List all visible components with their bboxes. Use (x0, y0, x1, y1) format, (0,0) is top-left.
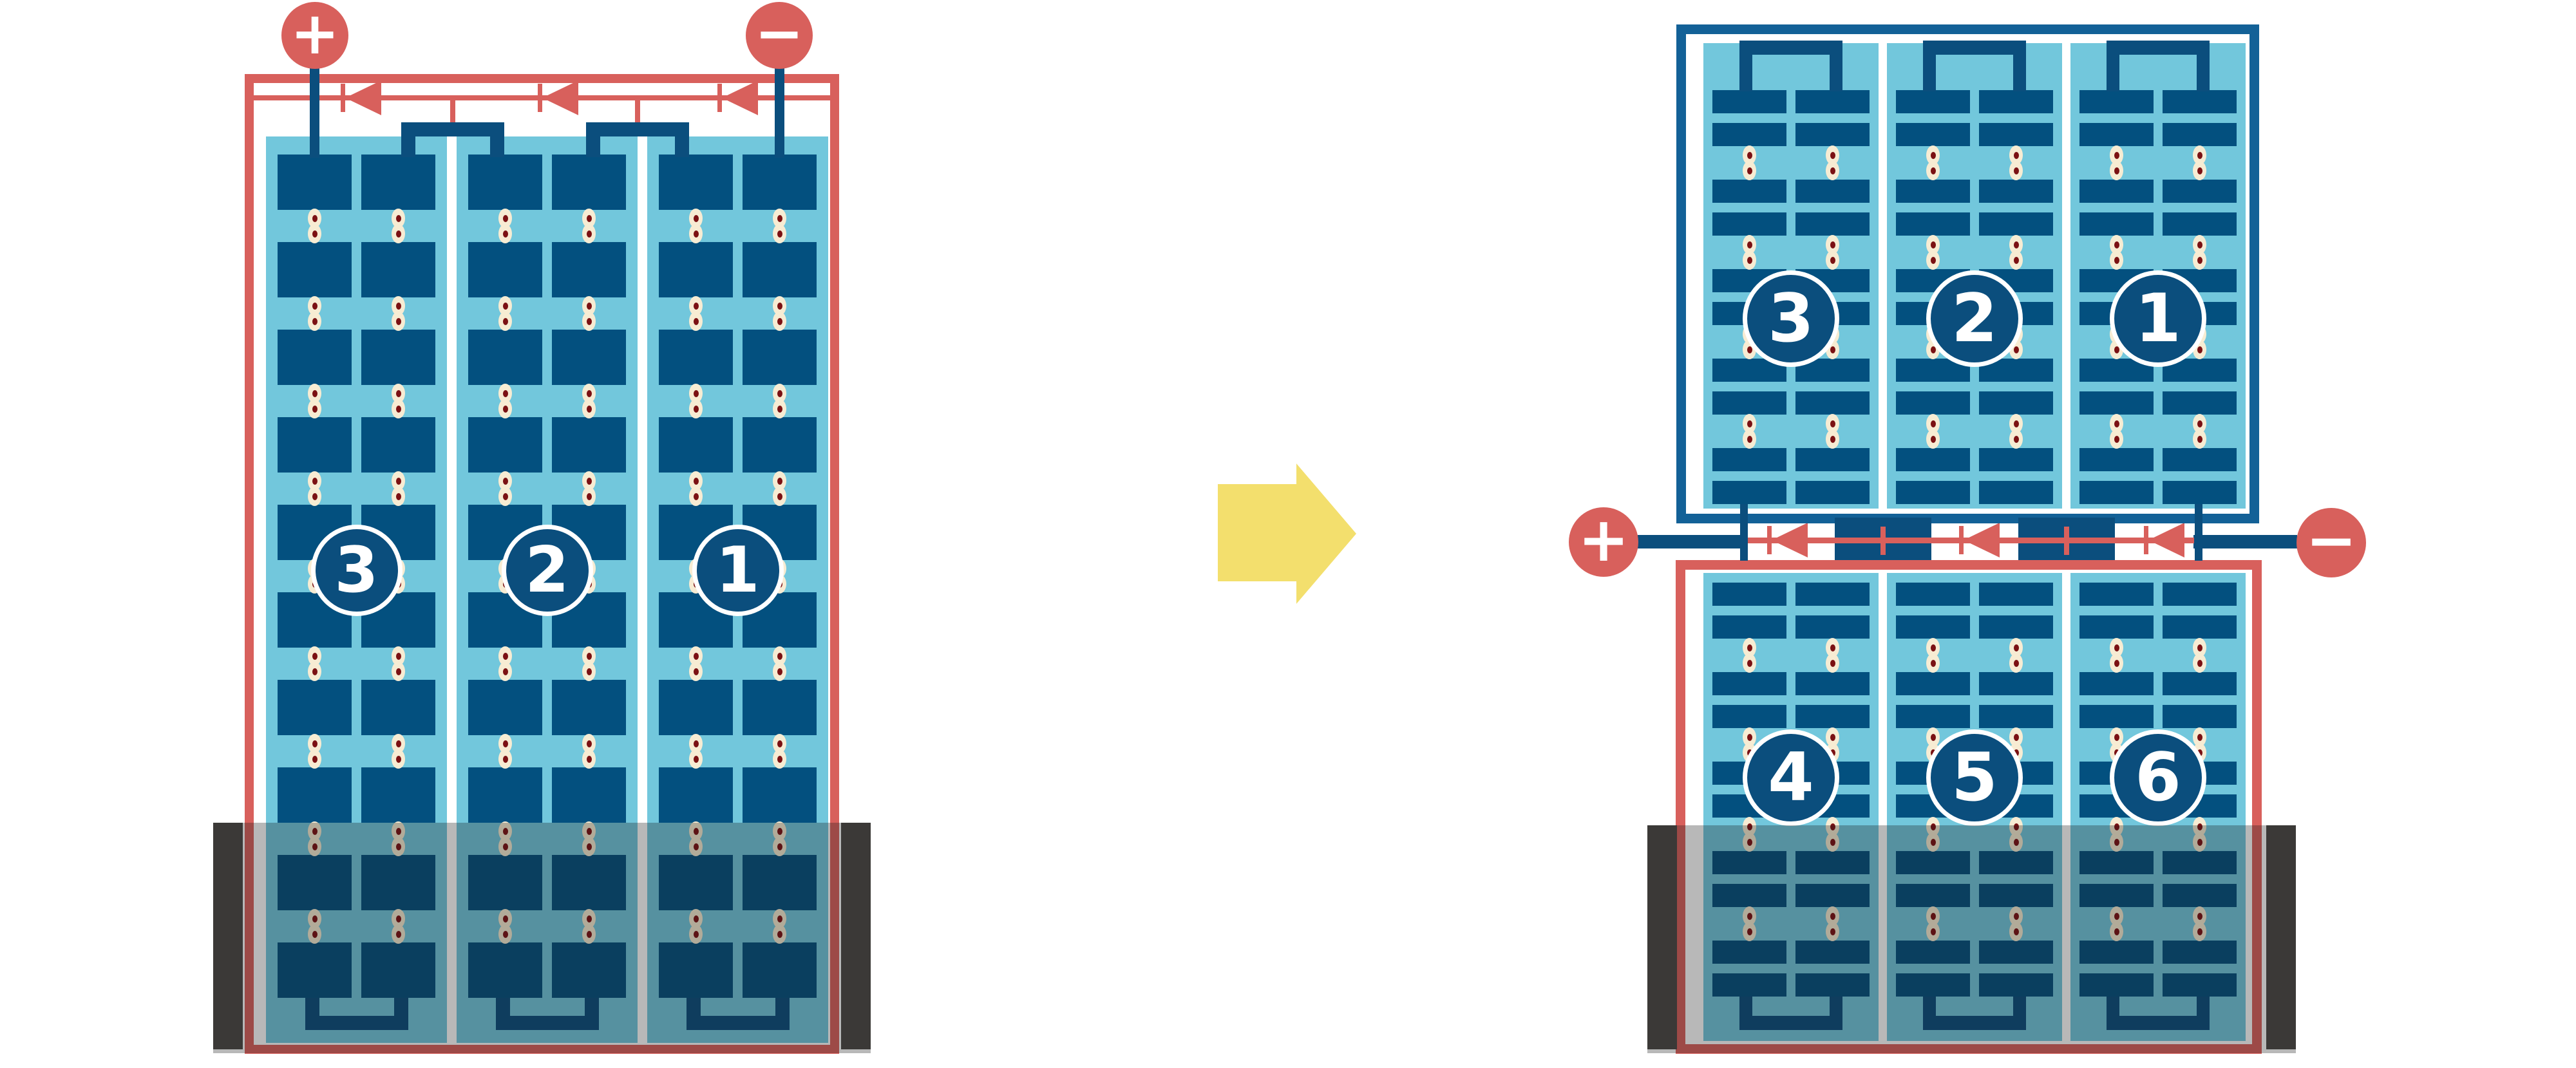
top-jumper-bar (1923, 41, 2026, 55)
shade-bar (213, 823, 243, 1049)
positive-terminal: + (1569, 507, 1638, 577)
top-jumper-arm (490, 136, 504, 157)
junction-riser-wire (1740, 504, 1748, 561)
shade-overlay (1647, 825, 2296, 1053)
positive-stem-wire (310, 64, 319, 158)
shade-overlay (213, 823, 871, 1053)
string-number-label: 4 (1768, 739, 1814, 816)
shade-bar (841, 823, 871, 1049)
top-jumper-arm (2197, 55, 2210, 91)
negative-stem-wire (775, 64, 784, 158)
positive-terminal-sign: + (1578, 505, 1629, 576)
string-number-badge: 5 (1926, 729, 2023, 826)
top-jumper-bar (1739, 41, 1842, 55)
string-number-label: 1 (2135, 280, 2181, 357)
string-number-label: 5 (1951, 739, 1998, 816)
string-number-badge: 3 (1743, 270, 1839, 367)
top-jumper-arm (675, 136, 689, 157)
negative-terminal: − (2297, 508, 2366, 577)
string-number-label: 2 (525, 534, 569, 607)
string-number-badge: 2 (502, 525, 593, 616)
top-jumper-arm (1830, 55, 1842, 91)
bypass-bus-wire (254, 95, 830, 100)
positive-terminal-sign: + (290, 0, 339, 68)
string-number-badge: 4 (1743, 729, 1839, 826)
top-jumper-arm (2013, 55, 2026, 91)
shade-bar (2266, 825, 2296, 1049)
string-number-badge: 2 (1926, 270, 2023, 367)
bypass-bus-wire (1748, 538, 2194, 543)
positive-terminal-bar (1638, 535, 1748, 548)
top-jumper-arm (2107, 55, 2119, 91)
top-jumper-bar (2107, 41, 2210, 55)
string-number-label: 3 (1768, 280, 1814, 357)
shade-bar (1647, 825, 1677, 1049)
string-number-label: 2 (1951, 280, 1998, 357)
negative-terminal-sign: − (2306, 505, 2357, 576)
top-jumper-arm (401, 136, 415, 157)
string-number-badge: 6 (2110, 729, 2206, 826)
string-number-label: 3 (334, 534, 378, 607)
string-number-label: 1 (715, 534, 759, 607)
top-jumper-arm (1739, 55, 1752, 91)
junction-riser-wire (2195, 504, 2202, 561)
string-number-badge: 3 (311, 525, 402, 616)
solar-module-diagram: +−321 321+−456 (0, 0, 2576, 1068)
top-jumper-bar (586, 122, 689, 136)
top-jumper-arm (586, 136, 600, 157)
top-jumper-bar (401, 122, 504, 136)
positive-terminal: + (281, 2, 348, 69)
negative-terminal-bar (2193, 535, 2297, 548)
negative-terminal-sign: − (755, 0, 804, 68)
negative-terminal: − (746, 2, 813, 69)
string-number-badge: 1 (692, 525, 784, 616)
top-jumper-arm (1923, 55, 1936, 91)
string-number-label: 6 (2135, 739, 2181, 816)
string-number-badge: 1 (2110, 270, 2206, 367)
